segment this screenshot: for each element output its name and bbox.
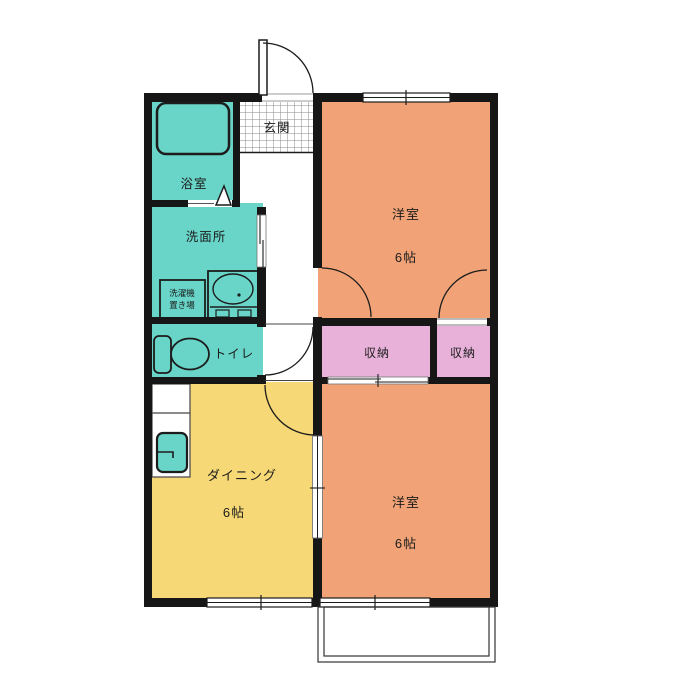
bathtub-icon: [157, 103, 229, 154]
washbasin-drawer-icon: [238, 310, 251, 317]
wall: [144, 598, 207, 607]
dining-label: ダイニング: [207, 468, 277, 483]
closet-left-label: 収納: [364, 346, 390, 360]
wall: [430, 318, 437, 384]
entrance-door-swing-arc: [263, 43, 313, 93]
wall: [313, 317, 322, 384]
washing-machine-area-icon: [160, 280, 205, 318]
wall: [322, 377, 328, 384]
bathroom-label: 浴室: [180, 176, 207, 191]
balcony-outer-rail: [318, 607, 495, 662]
washroom-sliding-door: [257, 215, 266, 267]
toilet-tank-icon: [154, 336, 171, 373]
washroom-label: 洗面所: [186, 230, 227, 244]
entrance-door-leaf: [259, 40, 267, 95]
partition-sliding-door: [310, 436, 325, 538]
floor-plan: 玄関 浴室 洗面所 洗濯機 置き場 トイレ 収納 収納 洋室 6帖 ダイニング …: [0, 0, 700, 700]
wall: [313, 93, 363, 102]
wall: [233, 102, 240, 200]
laundry-label-line1: 洗濯機: [169, 288, 195, 298]
wall: [313, 384, 322, 436]
western-top-size: 6帖: [395, 250, 417, 265]
dining-size: 6帖: [223, 505, 245, 520]
room-western-bottom: [318, 382, 493, 602]
wall: [144, 93, 152, 607]
wall: [144, 200, 188, 207]
washbasin-bowl-icon: [213, 274, 253, 304]
western-top-label: 洋室: [392, 207, 420, 222]
toilet-label: トイレ: [214, 347, 255, 361]
western-bottom-size: 6帖: [395, 536, 417, 551]
wall: [428, 377, 498, 384]
laundry-label-line2: 置き場: [169, 300, 195, 310]
wall: [144, 93, 262, 102]
wall: [144, 317, 265, 324]
wall: [430, 598, 498, 607]
wall: [490, 93, 498, 607]
entrance-label: 玄関: [263, 120, 290, 135]
washbasin-drain-icon: [237, 293, 240, 296]
wall: [257, 207, 266, 215]
wall: [322, 318, 437, 326]
western-bottom-label: 洋室: [392, 495, 420, 510]
wall: [232, 200, 240, 207]
closet-right-label: 収納: [450, 346, 476, 360]
washbasin-drawer-icon: [216, 310, 229, 317]
wall: [313, 538, 322, 607]
wall: [313, 102, 322, 268]
wall: [144, 377, 265, 384]
toilet-door-swing-arc: [265, 327, 313, 375]
balcony: [318, 607, 495, 662]
wall: [487, 318, 498, 326]
balcony-inner-rail: [324, 607, 489, 656]
toilet-bowl-icon: [171, 339, 209, 370]
